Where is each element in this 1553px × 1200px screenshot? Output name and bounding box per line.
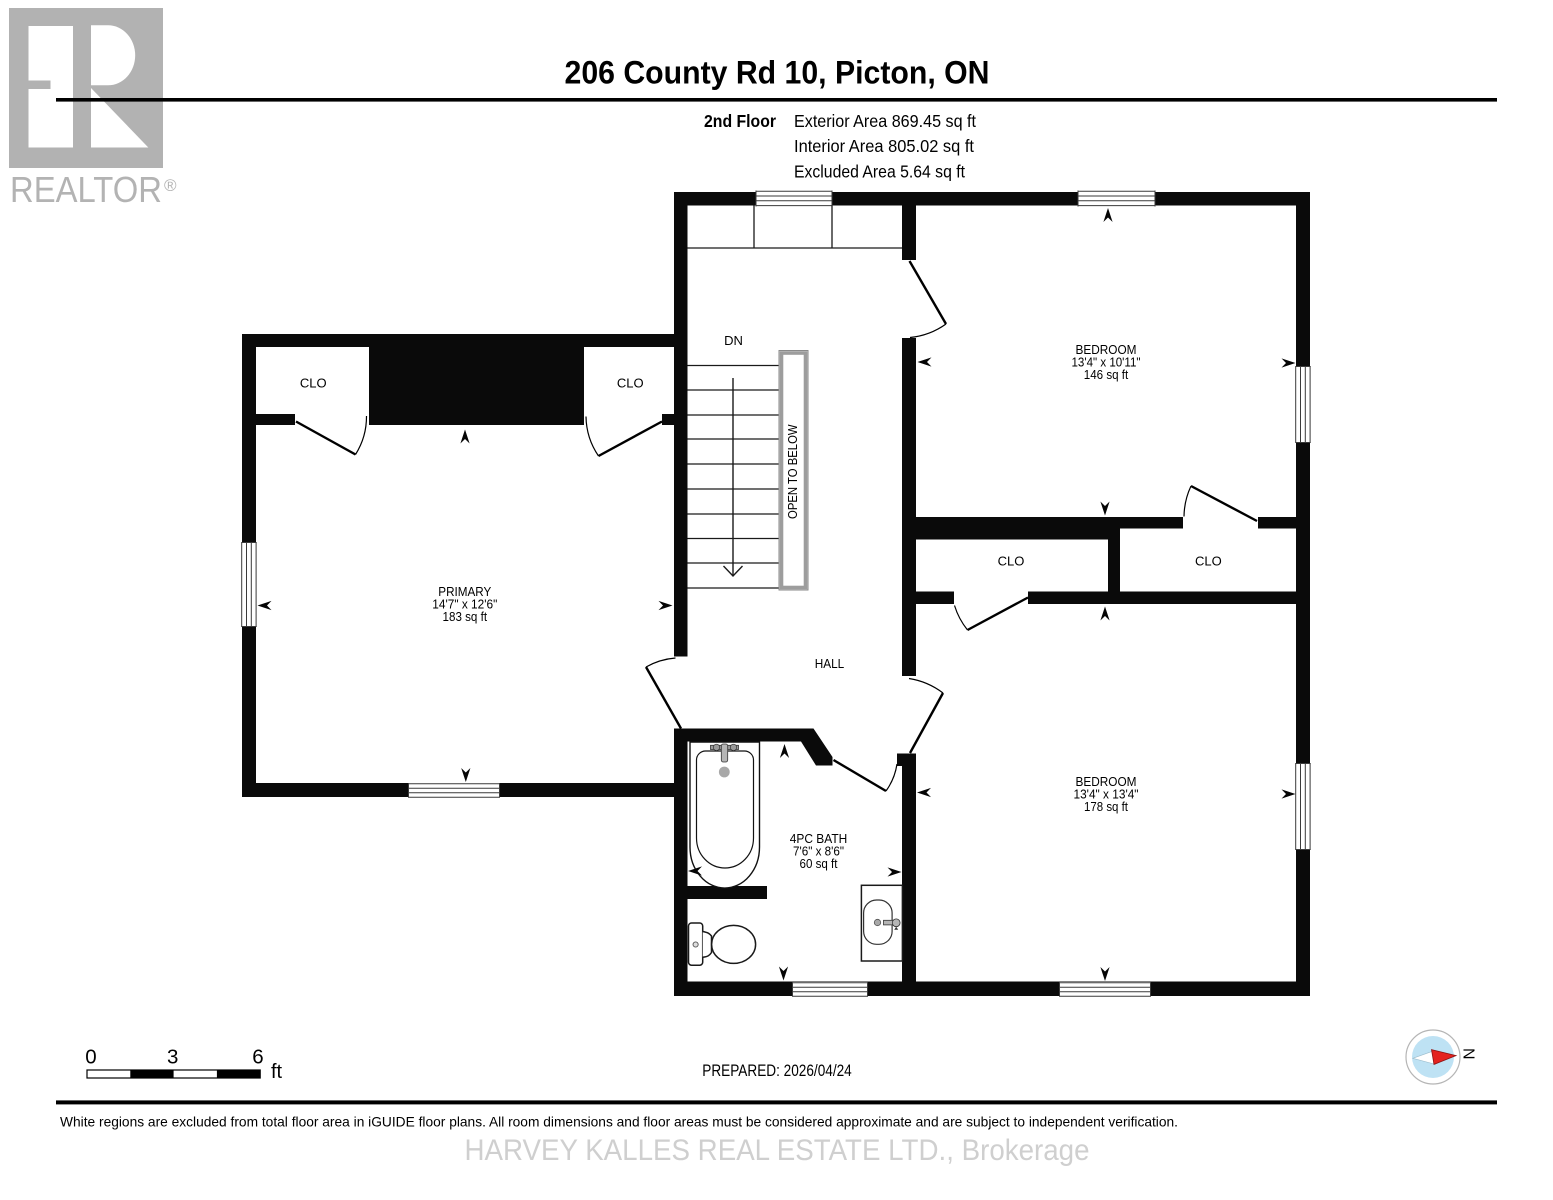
svg-text:REALTOR: REALTOR	[10, 169, 162, 210]
svg-text:CLO: CLO	[1195, 554, 1222, 569]
svg-text:HALL: HALL	[815, 656, 845, 671]
svg-text:HARVEY KALLES REAL ESTATE LTD.: HARVEY KALLES REAL ESTATE LTD., Brokerag…	[465, 1134, 1090, 1167]
svg-text:CLO: CLO	[998, 554, 1025, 569]
svg-text:CLO: CLO	[300, 376, 327, 391]
svg-text:N: N	[1460, 1048, 1477, 1060]
svg-text:6: 6	[252, 1046, 263, 1069]
svg-text:3: 3	[167, 1046, 178, 1069]
svg-text:White regions are excluded fro: White regions are excluded from total fl…	[60, 1114, 1178, 1129]
svg-text:PREPARED: 2026/04/24: PREPARED: 2026/04/24	[702, 1062, 852, 1080]
svg-text:Exterior Area 869.45 sq ft: Exterior Area 869.45 sq ft	[794, 111, 976, 131]
svg-text:2nd Floor: 2nd Floor	[704, 111, 776, 131]
svg-text:146 sq ft: 146 sq ft	[1084, 367, 1129, 382]
svg-text:Interior Area 805.02 sq ft: Interior Area 805.02 sq ft	[794, 136, 974, 156]
svg-text:60 sq ft: 60 sq ft	[800, 856, 838, 871]
svg-text:CLO: CLO	[617, 376, 644, 391]
svg-text:ft: ft	[271, 1061, 283, 1083]
svg-text:®: ®	[164, 176, 177, 195]
svg-text:DN: DN	[724, 333, 743, 348]
svg-text:0: 0	[85, 1046, 96, 1069]
svg-text:178 sq ft: 178 sq ft	[1084, 799, 1128, 814]
svg-text:Excluded Area 5.64 sq ft: Excluded Area 5.64 sq ft	[794, 161, 965, 181]
svg-text:183 sq ft: 183 sq ft	[443, 609, 488, 624]
svg-text:OPEN TO BELOW: OPEN TO BELOW	[785, 424, 800, 519]
svg-text:206 County Rd 10, Picton, ON: 206 County Rd 10, Picton, ON	[565, 55, 990, 91]
